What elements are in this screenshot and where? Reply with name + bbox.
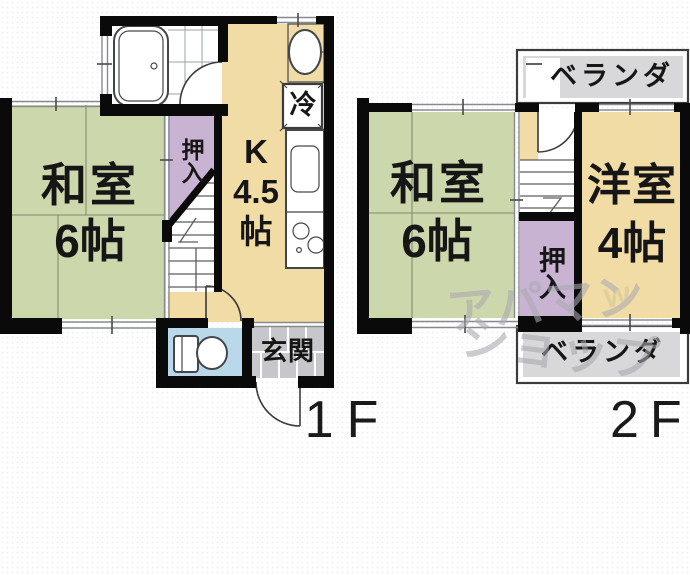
closet-label-2f: 押入 bbox=[532, 226, 564, 320]
sink-icon bbox=[289, 30, 321, 74]
entrance-door bbox=[256, 382, 300, 426]
closet-label-1f: 押入 bbox=[173, 118, 203, 204]
veranda-bottom-label: ベランダ bbox=[528, 338, 678, 368]
entrance-label: 玄関 bbox=[250, 337, 326, 366]
floor2-label: 2F bbox=[610, 392, 690, 449]
bathtub-icon bbox=[114, 26, 168, 106]
veranda-top-label: ベランダ bbox=[542, 62, 682, 92]
room-youshitsu-2f bbox=[582, 112, 680, 318]
room-size-washitsu-1f: 6帖 bbox=[20, 216, 160, 267]
floor-plan-canvas: 和室 6帖 K 4.5 帖 押入 冷 玄関 1F 和室 6帖 洋室 4帖 押入 … bbox=[0, 0, 690, 575]
room-label-washitsu-1f: 和室 bbox=[20, 160, 160, 211]
room-label-kitchen-type: K bbox=[220, 134, 292, 170]
room-label-kitchen-unit: 帖 bbox=[220, 214, 292, 250]
room-size-youshitsu-2f: 4帖 bbox=[582, 220, 682, 268]
floor1-label: 1F bbox=[300, 392, 396, 449]
fridge-label: 冷 bbox=[283, 91, 323, 121]
room-label-washitsu-2f: 和室 bbox=[366, 158, 512, 209]
room-label-kitchen-size: 4.5 bbox=[220, 174, 292, 210]
room-label-youshitsu-2f: 洋室 bbox=[582, 162, 682, 210]
entrance-step-line bbox=[252, 323, 324, 327]
room-size-washitsu-2f: 6帖 bbox=[366, 216, 508, 267]
